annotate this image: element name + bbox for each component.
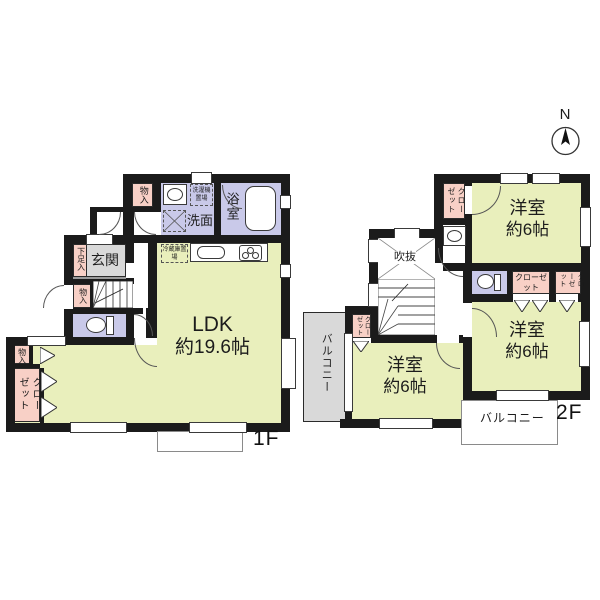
wall xyxy=(434,174,443,234)
folding-door-icon xyxy=(559,300,575,312)
room-sw-name: 洋室 xyxy=(355,355,455,377)
room-ne-size: 約6帖 xyxy=(480,220,575,240)
ldk-name-label: LDK xyxy=(150,312,275,337)
folding-door-icon xyxy=(41,371,57,392)
door-opening xyxy=(437,335,459,343)
door-opening xyxy=(463,303,472,337)
wall xyxy=(148,243,157,308)
storage-hall-label: 物入 xyxy=(78,288,88,305)
storage-lower-label: 物入 xyxy=(17,348,27,364)
north-arrow-icon xyxy=(549,124,582,158)
storage-upper-label: 物入 xyxy=(138,186,149,205)
closet-east-label: クローゼット xyxy=(558,273,585,293)
window xyxy=(532,173,560,184)
window xyxy=(280,264,291,278)
window xyxy=(27,336,66,346)
window xyxy=(70,422,127,433)
door-arc xyxy=(438,248,463,277)
floor1-label: 1F xyxy=(253,426,280,451)
north-label: N xyxy=(553,106,577,124)
ldk-size-label: 約19.6帖 xyxy=(150,337,275,360)
window xyxy=(191,172,212,184)
closet-nw-label: クローゼット xyxy=(446,187,466,216)
folding-door-icon xyxy=(353,341,369,352)
door-opening xyxy=(64,285,73,309)
wall xyxy=(442,219,472,225)
shoe-storage-label: 下足入 xyxy=(76,247,86,275)
room-sw-size: 約6帖 xyxy=(355,377,455,397)
folding-door-icon xyxy=(41,397,57,418)
window xyxy=(496,390,549,401)
terrace-outline xyxy=(157,431,243,452)
balcony-west-label: バルコニー xyxy=(319,333,332,403)
wall xyxy=(132,235,281,243)
wall xyxy=(6,337,15,432)
balcony-door-window xyxy=(344,333,353,412)
window xyxy=(500,173,528,184)
door-arc xyxy=(99,212,121,235)
wall xyxy=(6,423,290,432)
entrance-label: 玄関 xyxy=(91,252,119,269)
door-opening xyxy=(465,186,472,214)
washing-machine-x-icon xyxy=(163,210,186,232)
washbasin-icon xyxy=(167,188,183,201)
folding-door-icon xyxy=(40,347,55,364)
window xyxy=(189,422,247,433)
window xyxy=(579,321,590,367)
closet-center-label: クローゼット xyxy=(513,273,549,293)
folding-door-icon xyxy=(532,300,548,312)
door-arc xyxy=(134,212,156,235)
bathroom-label: 浴室 xyxy=(224,192,240,226)
washbasin-2f-icon xyxy=(447,230,462,242)
door-arc xyxy=(43,285,64,308)
toilet-icon xyxy=(477,274,494,289)
wall xyxy=(550,271,555,294)
toilet-icon xyxy=(86,317,106,333)
void-label: 吹抜 xyxy=(394,251,416,264)
toilet-tank-icon xyxy=(106,316,114,335)
wall xyxy=(214,174,221,235)
wall xyxy=(281,174,290,432)
washroom-label: 洗面 xyxy=(187,213,213,229)
stairs-icon xyxy=(378,279,435,335)
wall xyxy=(12,364,40,368)
room-se-size: 約6帖 xyxy=(478,342,576,362)
window xyxy=(280,195,291,209)
folding-door-icon xyxy=(514,300,530,312)
bay-window xyxy=(281,338,296,389)
bathtub-icon xyxy=(245,186,276,231)
kitchen-sink-icon xyxy=(197,246,225,259)
balcony-south-label: バルコニー xyxy=(480,411,545,425)
closet-stairs-label: クローゼット xyxy=(354,316,370,336)
stairs-icon xyxy=(93,281,133,308)
room-ne-name: 洋室 xyxy=(480,198,575,220)
closet-1f-label: クローゼット xyxy=(16,377,42,414)
toilet-tank-icon xyxy=(494,274,501,291)
wall xyxy=(29,345,33,366)
laundry-space-label: 洗濯機置場 xyxy=(191,187,212,204)
wall xyxy=(126,207,134,263)
floor2-label: 2F xyxy=(556,400,583,425)
window xyxy=(379,418,433,429)
burner-icon xyxy=(252,252,259,259)
wall xyxy=(153,174,161,207)
wall xyxy=(64,337,134,345)
window xyxy=(86,234,113,245)
wall xyxy=(507,271,512,294)
window xyxy=(580,207,591,247)
fridge-space-label: 冷蔵庫置場 xyxy=(161,246,188,263)
floor-plan-canvas: 洗濯機置場 洗面 浴室 冷蔵庫置場 LDK 約19.6帖 玄関 下足入 物入 物… xyxy=(0,0,600,600)
wall xyxy=(371,314,378,343)
room-se-name: 洋室 xyxy=(478,320,576,342)
entrance-step-line xyxy=(73,277,126,279)
